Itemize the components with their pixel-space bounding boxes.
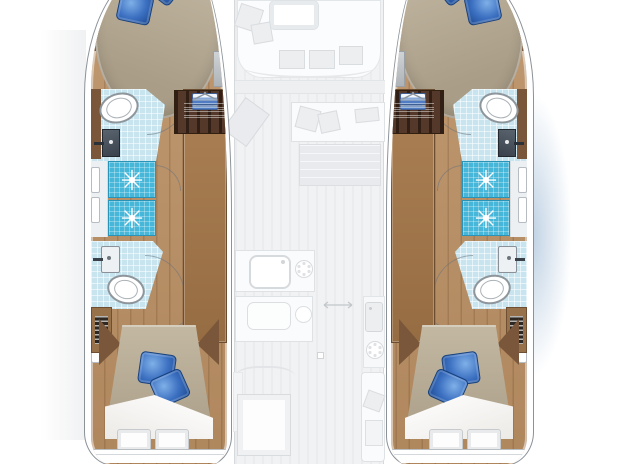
hull-window [518,197,527,223]
shower-head-icon [475,169,497,191]
hull-interior [91,0,227,464]
door-swing-arc [437,165,463,191]
transom-step [91,449,227,463]
closet-hangers [184,90,226,104]
ghost-seat-pillow [365,420,383,446]
wardrobe-column [183,89,227,343]
washbasin [498,129,516,157]
transom-step [391,449,527,463]
sliding-door-arrow-icon [321,300,355,310]
washbasin [101,246,120,273]
shower-head-icon [121,169,143,191]
catamaran-floorplan [0,0,618,464]
ghost-cockpit-cushion [250,21,273,44]
ghost-cockpit-table [269,0,319,30]
washbasin [102,129,120,157]
door-swing-arc [145,255,185,295]
white-pillow [467,429,501,451]
closet-hangers [392,90,434,104]
ghost-aft-seat [361,372,385,462]
cabin-hatch [213,51,225,87]
white-pillow [155,429,189,451]
wardrobe-column [391,89,435,343]
hull-interior [391,0,527,464]
hanger-icon [398,91,428,102]
shower-stall [108,200,156,236]
cabin-hatch [393,51,405,87]
ghost-sofa-cushion [317,110,341,134]
hull-window [91,197,100,223]
ghost-sink-icon [249,255,291,289]
ghost-crossbeam [235,80,385,94]
hull-window [518,167,527,193]
shower-stall [108,161,156,198]
shower-head-icon [121,207,143,229]
stove-icon [365,340,385,360]
ghost-burner-icon [295,306,312,323]
door-swing-arc [433,255,473,295]
hull-shadow-haze [40,30,86,440]
ghost-sofa-cushion [354,107,379,123]
shower-stall [462,200,510,236]
port-hull [84,0,232,464]
shower-head-icon [475,207,497,229]
starboard-hull [386,0,534,464]
ghost-dinette-bench [235,366,295,392]
door-swing-arc [155,165,181,191]
wood-trim [517,89,527,159]
ghost-dinette-table [237,394,291,456]
stove-icon [294,259,314,279]
washbasin [498,246,517,273]
white-pillow [117,429,151,451]
ghost-lounge-pad [299,144,381,186]
wood-trim [91,89,101,159]
ghost-seat-back-curve [241,54,377,78]
hull-window [91,167,100,193]
ghost-sink-icon [365,302,383,332]
ghost-sink-icon [247,302,291,330]
white-pillow [429,429,463,451]
hanger-icon [190,91,220,102]
shower-stall [462,161,510,198]
ghost-mast-step [317,352,324,359]
saloon-deck-ghosted [234,0,384,464]
